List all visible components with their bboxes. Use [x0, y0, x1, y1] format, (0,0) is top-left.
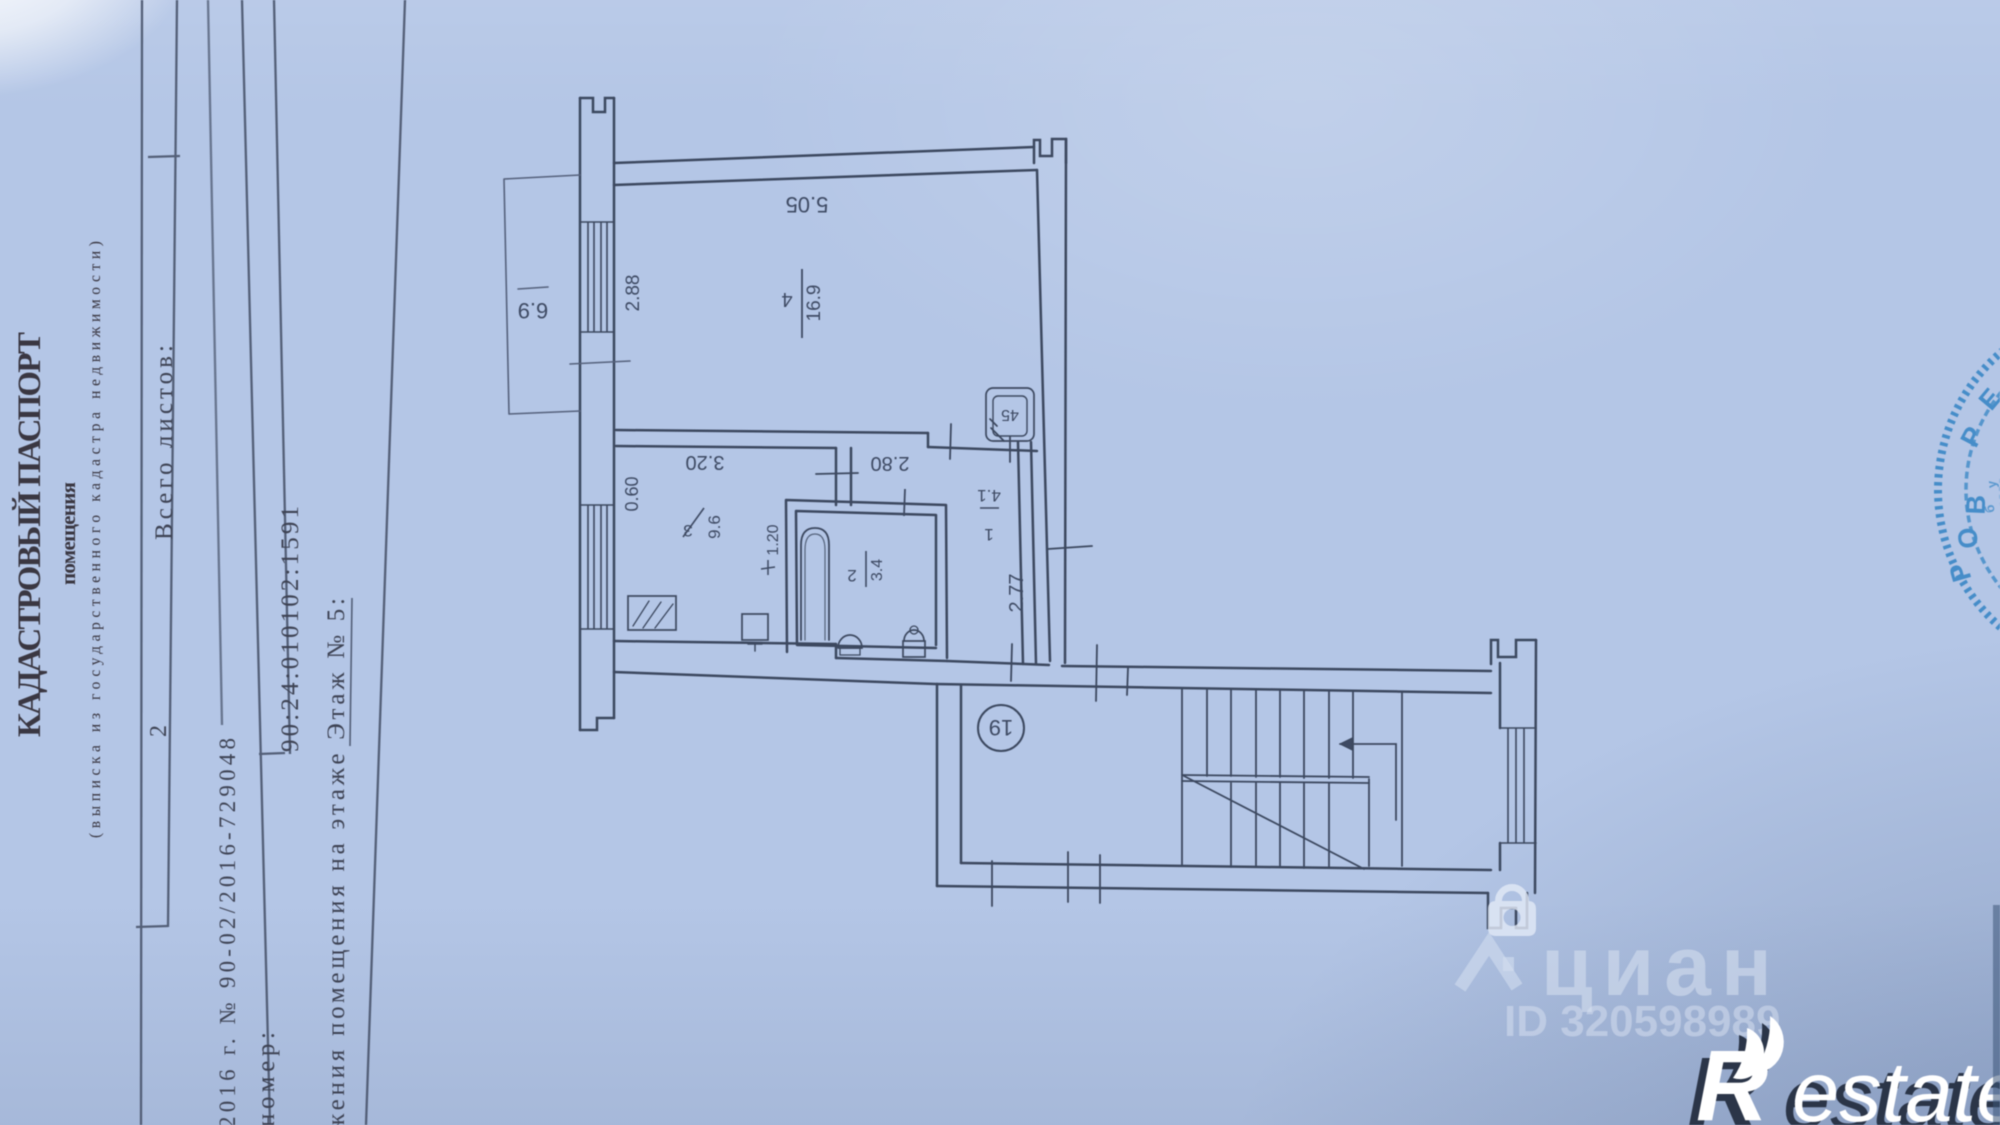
- svg-text:КАДАСТРОВЫЙ ПАСПОРТ: КАДАСТРОВЫЙ ПАСПОРТ: [11, 332, 48, 737]
- svg-text:4.1: 4.1: [977, 486, 1001, 505]
- svg-text:6.9: 6.9: [518, 298, 549, 323]
- svg-text:19: 19: [989, 715, 1013, 740]
- svg-text:2: 2: [146, 725, 172, 737]
- svg-text:3.20: 3.20: [686, 451, 725, 473]
- svg-text:2.80: 2.80: [871, 452, 910, 474]
- svg-text:2016 г. № 90-02/2016-729048: 2016 г. № 90-02/2016-729048: [215, 738, 240, 1125]
- svg-text:3.4: 3.4: [869, 559, 886, 581]
- svg-text:estate: estate: [1792, 1045, 2000, 1125]
- svg-text:2: 2: [847, 566, 856, 585]
- svg-text:5.05: 5.05: [786, 192, 829, 217]
- svg-text:4: 4: [781, 288, 792, 310]
- svg-text:О: О: [1952, 526, 1984, 551]
- svg-text:45: 45: [1001, 406, 1019, 423]
- svg-text:1.20: 1.20: [765, 524, 782, 555]
- svg-text:Р: Р: [1943, 560, 1977, 586]
- svg-text:помещения: помещения: [56, 482, 80, 585]
- svg-text:2.77: 2.77: [1006, 574, 1028, 613]
- svg-text:9.6: 9.6: [705, 515, 724, 539]
- svg-text:0.60: 0.60: [622, 476, 642, 511]
- svg-text:Р: Р: [1955, 422, 1990, 452]
- svg-text:Всего листов:: Всего листов:: [151, 345, 178, 540]
- svg-text:(выписка из государственного к: (выписка из государственного кадастра не…: [87, 241, 104, 838]
- svg-text:16.9: 16.9: [804, 285, 825, 322]
- svg-text:жения помещения на этаже Этаж: жения помещения на этаже Этаж № 5:: [323, 598, 350, 1125]
- svg-text:3: 3: [683, 521, 692, 540]
- svg-text:1: 1: [984, 525, 993, 544]
- svg-text:2.88: 2.88: [623, 275, 644, 312]
- svg-text:90:24:010102:1591: 90:24:010102:1591: [277, 506, 304, 752]
- svg-text:у: у: [1984, 479, 2000, 488]
- svg-text:номер:: номер:: [253, 1032, 280, 1125]
